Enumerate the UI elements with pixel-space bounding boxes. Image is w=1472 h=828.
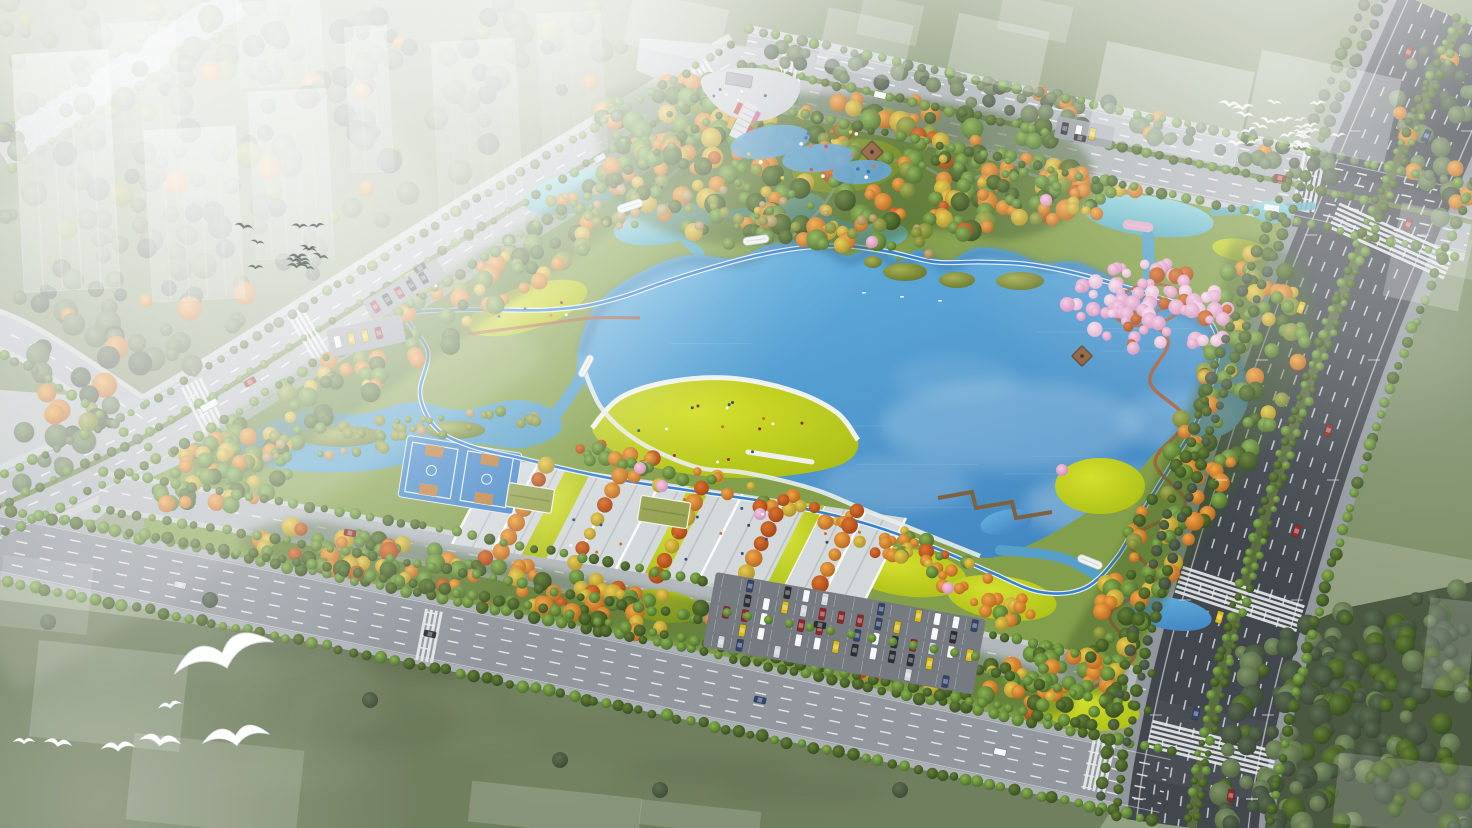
atmospheric-haze <box>0 0 1472 828</box>
park-masterplan-rendering <box>0 0 1472 828</box>
